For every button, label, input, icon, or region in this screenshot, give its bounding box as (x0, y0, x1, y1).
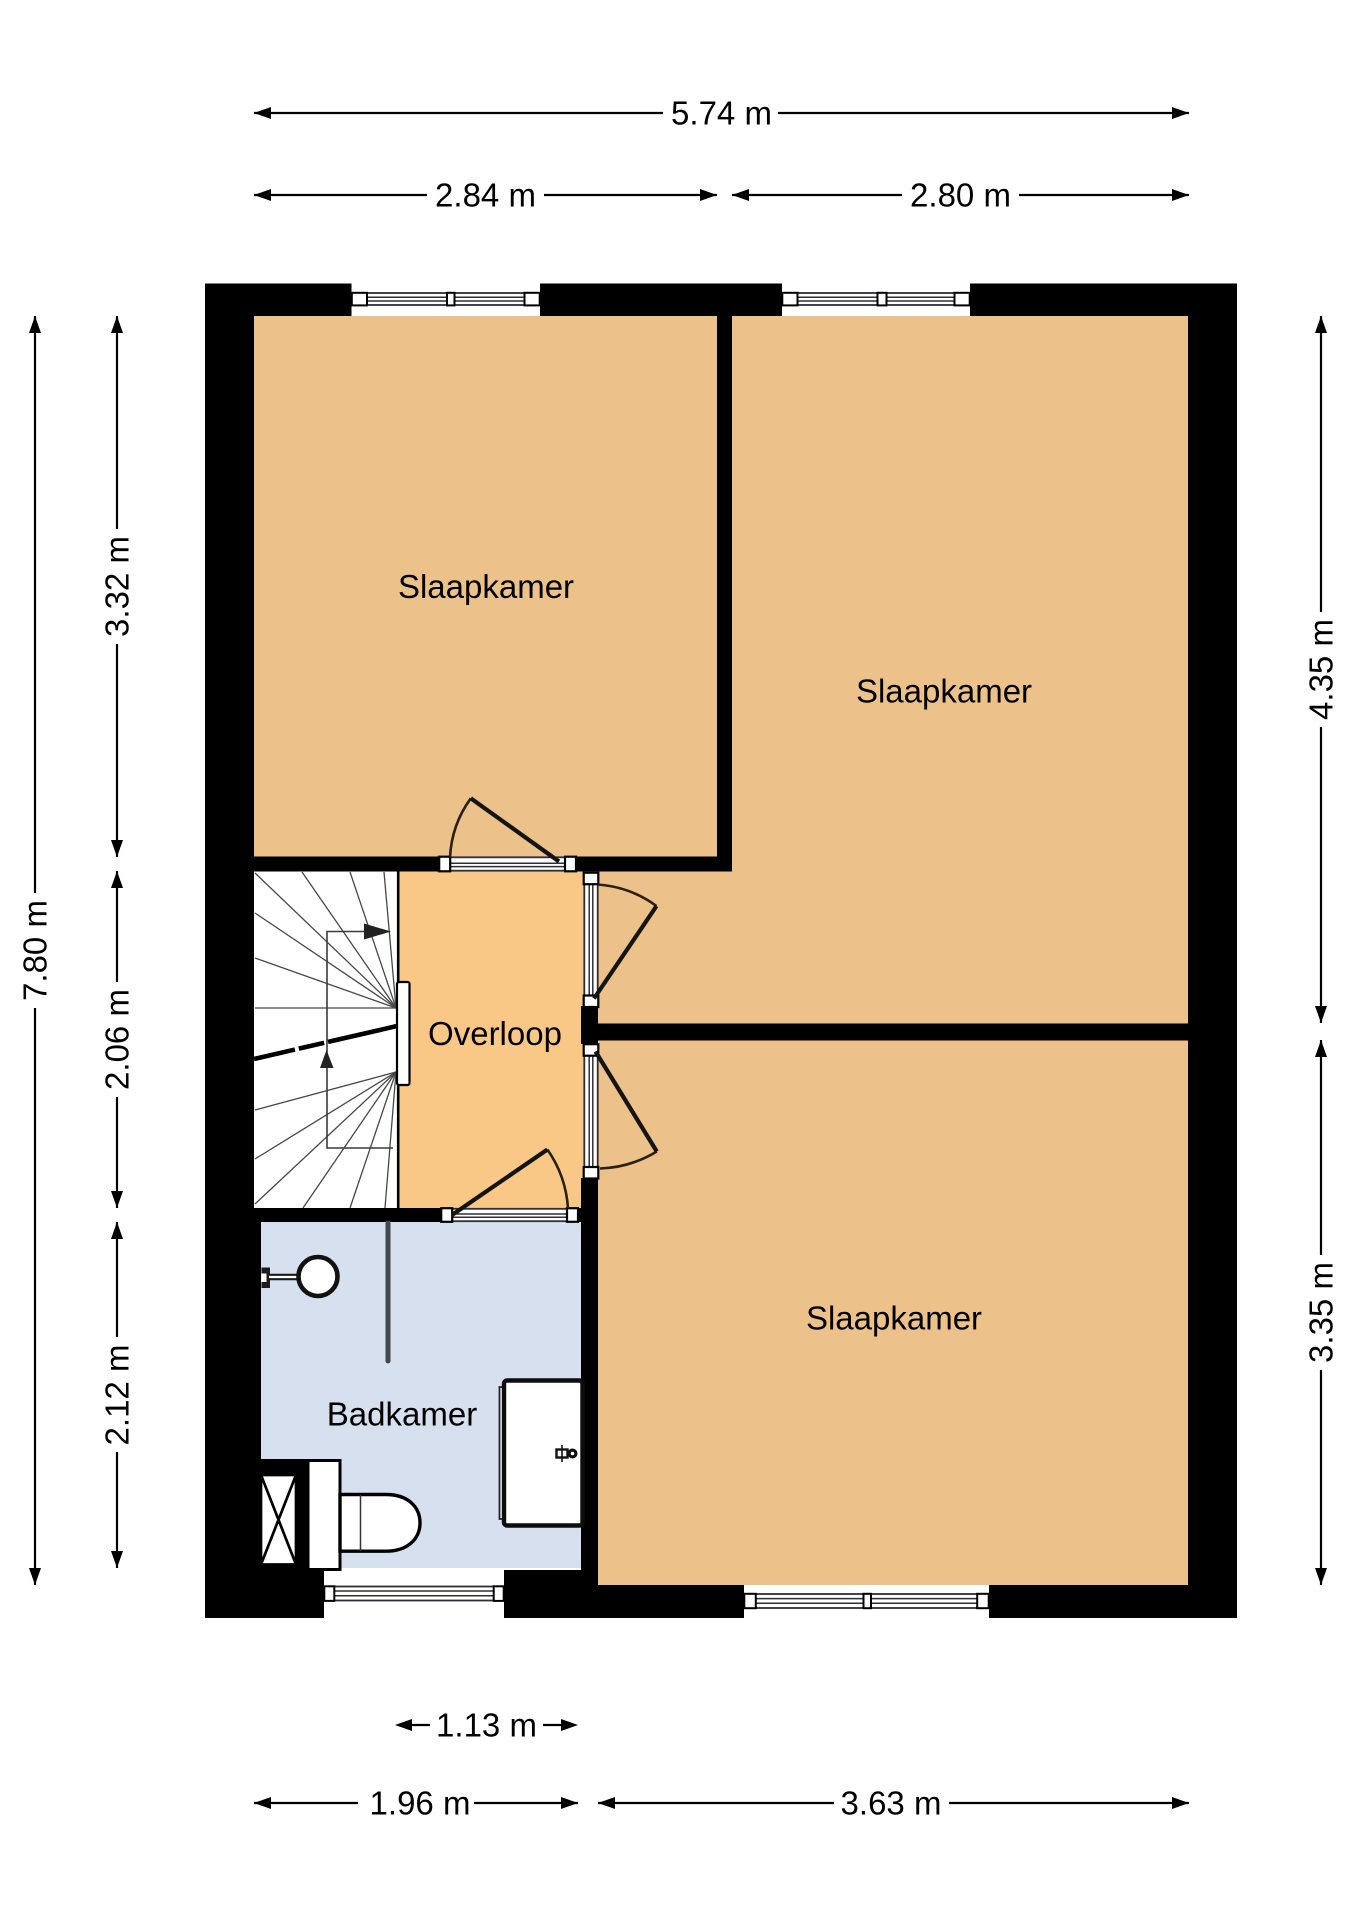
svg-text:2.84 m: 2.84 m (435, 177, 536, 214)
svg-text:3.63 m: 3.63 m (841, 1785, 942, 1822)
svg-text:Overloop: Overloop (428, 1015, 562, 1052)
svg-text:7.80 m: 7.80 m (17, 900, 54, 1001)
svg-text:1.96 m: 1.96 m (370, 1785, 471, 1822)
svg-text:2.12 m: 2.12 m (99, 1345, 136, 1446)
svg-text:Slaapkamer: Slaapkamer (806, 1300, 982, 1337)
svg-text:2.06 m: 2.06 m (99, 989, 136, 1090)
svg-text:Slaapkamer: Slaapkamer (856, 673, 1032, 710)
svg-text:Badkamer: Badkamer (327, 1396, 477, 1433)
svg-text:3.35 m: 3.35 m (1303, 1262, 1340, 1363)
svg-text:2.80 m: 2.80 m (910, 177, 1011, 214)
svg-text:3.32 m: 3.32 m (99, 536, 136, 637)
svg-text:4.35 m: 4.35 m (1303, 619, 1340, 720)
svg-text:1.13 m: 1.13 m (436, 1707, 537, 1744)
svg-text:5.74 m: 5.74 m (671, 95, 772, 132)
svg-text:Slaapkamer: Slaapkamer (398, 568, 574, 605)
